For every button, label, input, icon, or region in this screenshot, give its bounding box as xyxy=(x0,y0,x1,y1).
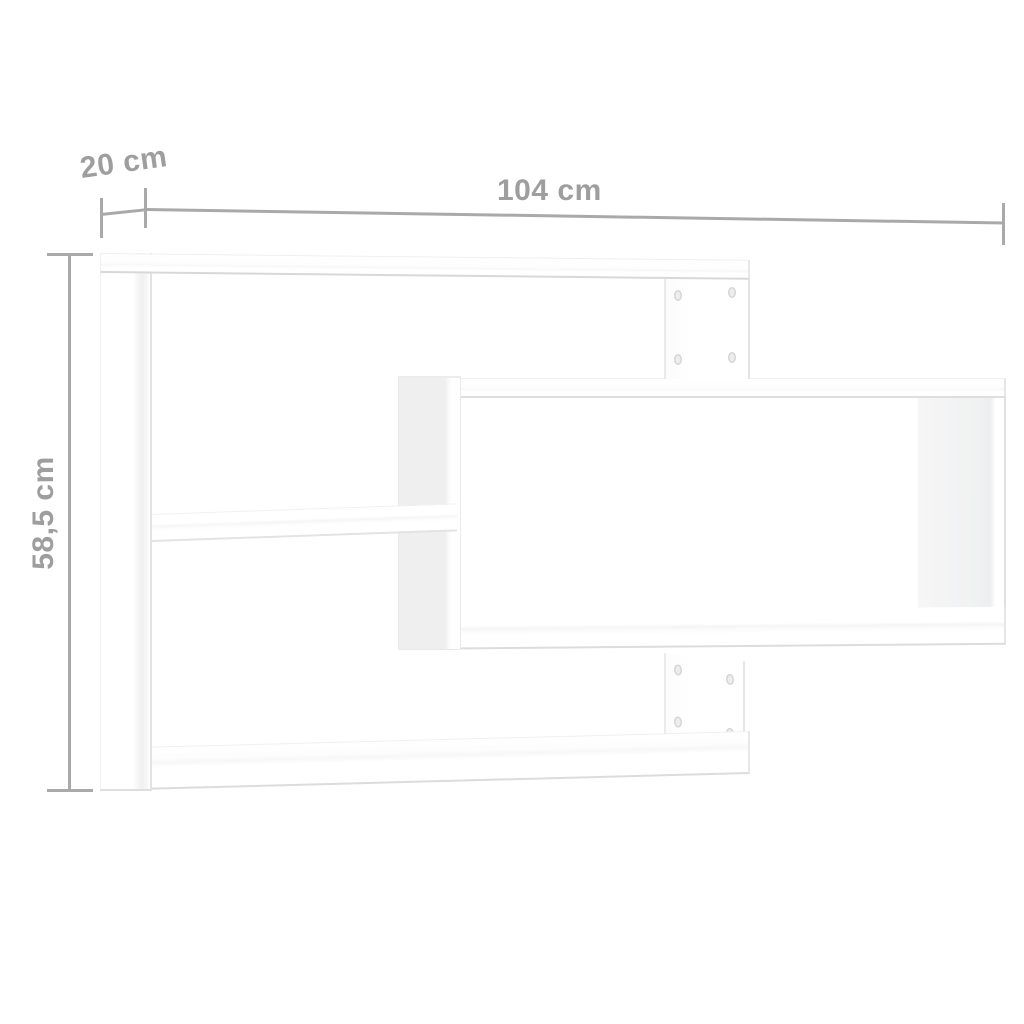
screw-hole-icon xyxy=(726,674,734,686)
screw-hole-icon xyxy=(674,290,682,301)
left-side-panel xyxy=(100,253,152,791)
product-dimension-diagram: 20 cm 104 cm 58,5 cm xyxy=(0,0,1024,1024)
depth-dimension-line xyxy=(101,208,147,216)
top-shelf-board xyxy=(100,253,750,280)
screw-hole-icon xyxy=(728,287,736,298)
screw-hole-icon xyxy=(674,354,682,365)
width-dimension-label: 104 cm xyxy=(497,176,602,206)
screw-hole-icon xyxy=(674,664,682,676)
depth-dimension-label: 20 cm xyxy=(78,142,169,184)
screw-hole-icon xyxy=(674,716,682,728)
middle-box-right-panel xyxy=(918,396,1006,614)
height-dimension-line xyxy=(68,254,71,791)
width-dimension-tick-right xyxy=(1002,203,1005,245)
bottom-shelf-board xyxy=(100,731,750,791)
height-dimension-label: 58,5 cm xyxy=(29,456,59,570)
upper-connector-panel xyxy=(664,272,750,379)
middle-box-bottom-board xyxy=(398,607,1006,650)
lower-connector-panel xyxy=(664,653,745,744)
middle-box-top-board xyxy=(455,378,1006,398)
depth-dimension-tick-left xyxy=(100,198,103,238)
height-dimension-tick-bottom xyxy=(47,789,93,792)
height-dimension-tick-top xyxy=(47,253,93,256)
width-dimension-line xyxy=(146,208,1005,224)
screw-hole-icon xyxy=(728,352,736,363)
